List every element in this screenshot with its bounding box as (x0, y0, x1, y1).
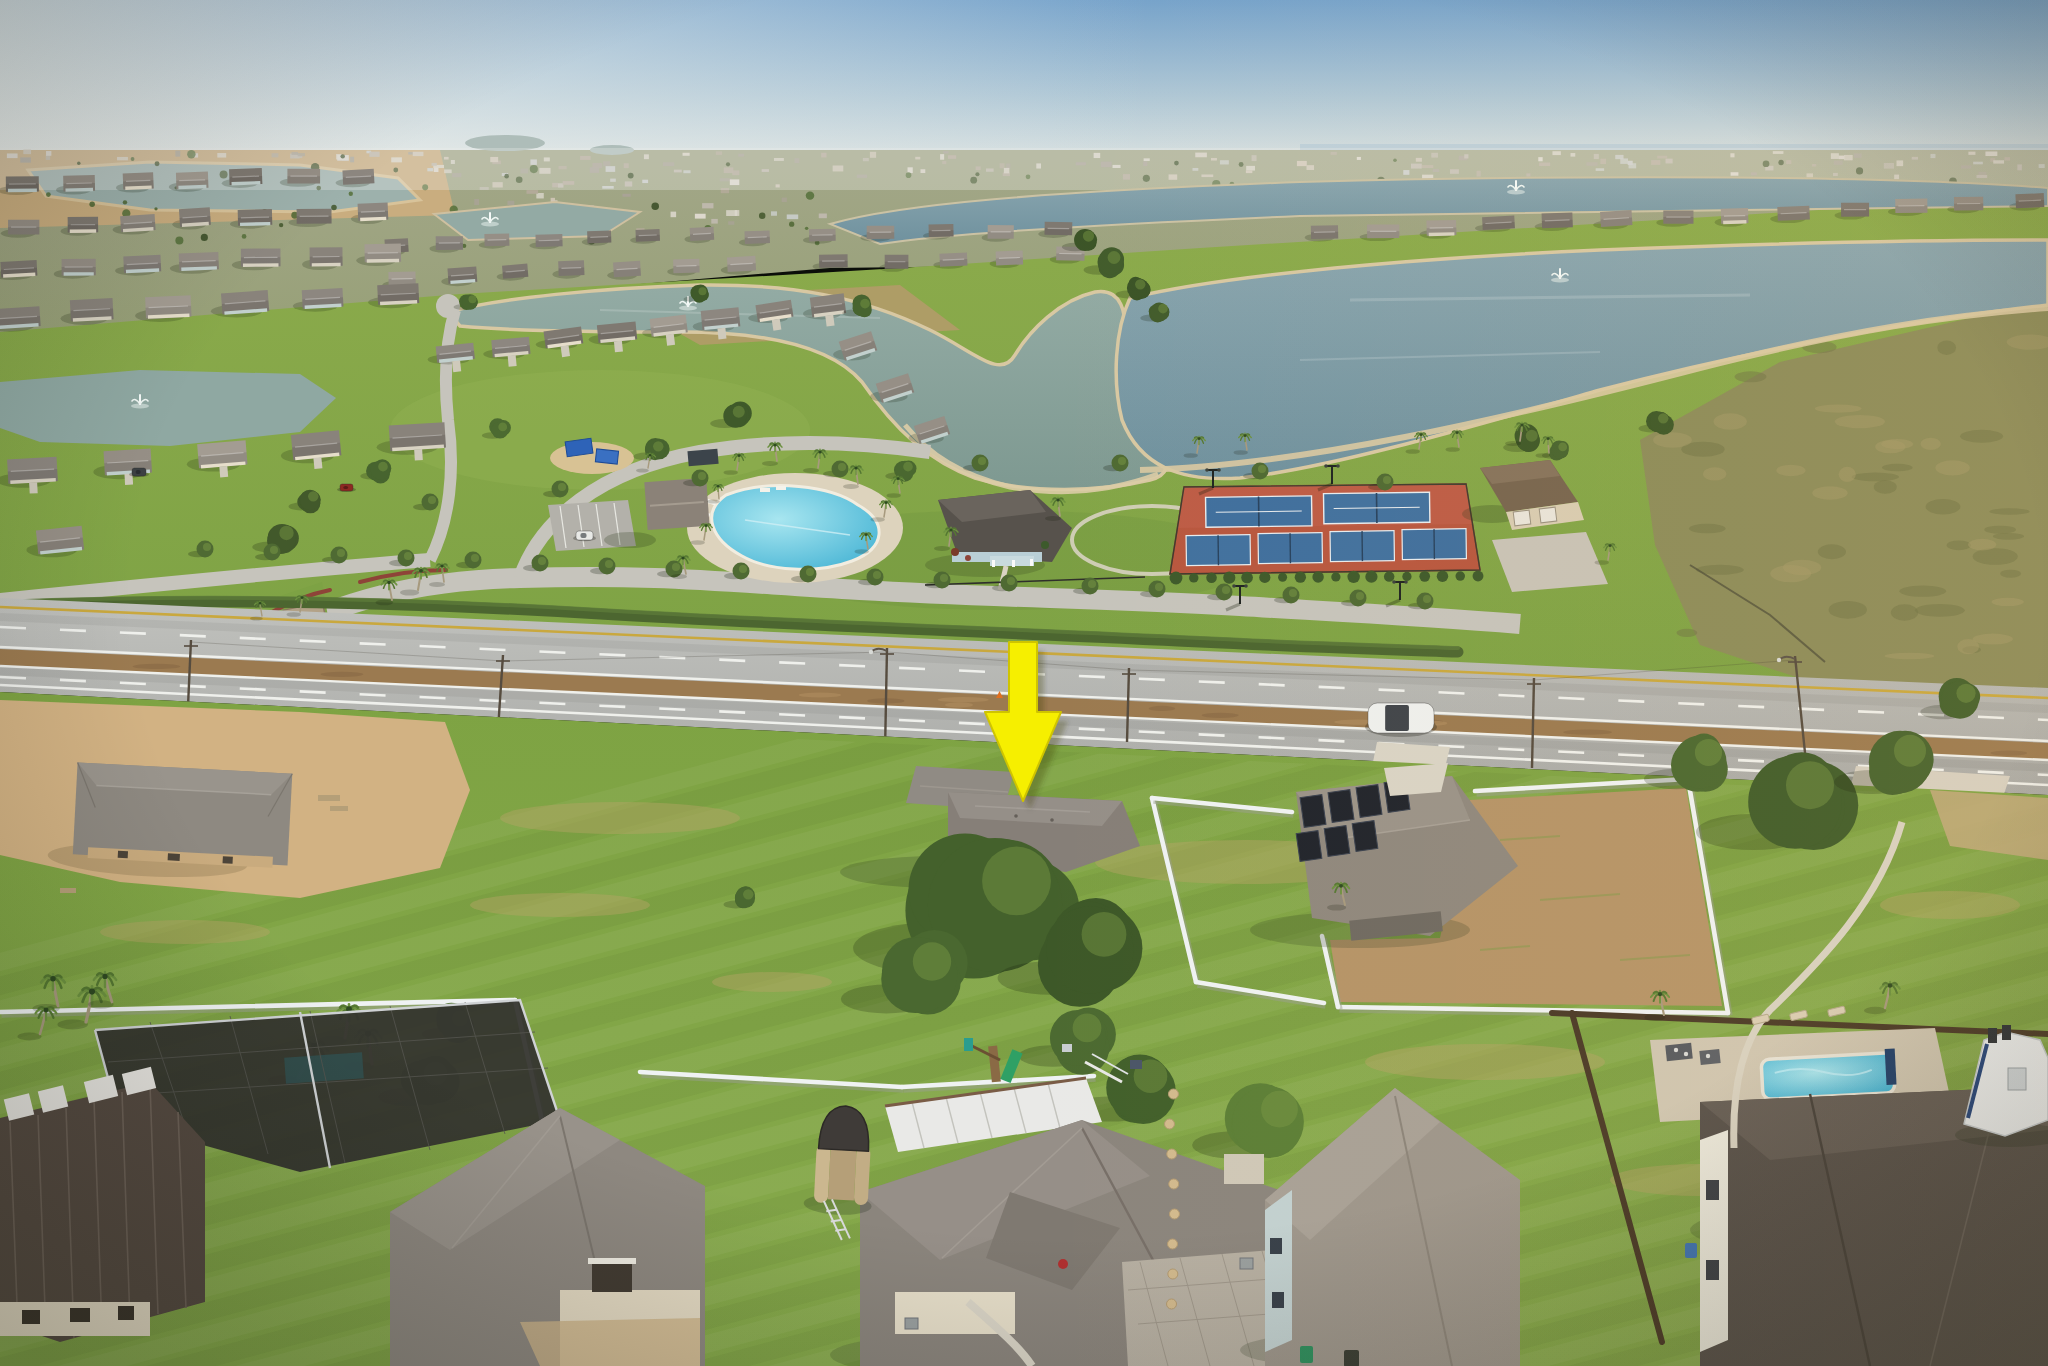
aerial-neighborhood-photo (0, 0, 2048, 1366)
photo-stage (0, 0, 2048, 1366)
vignette (0, 0, 2048, 1366)
